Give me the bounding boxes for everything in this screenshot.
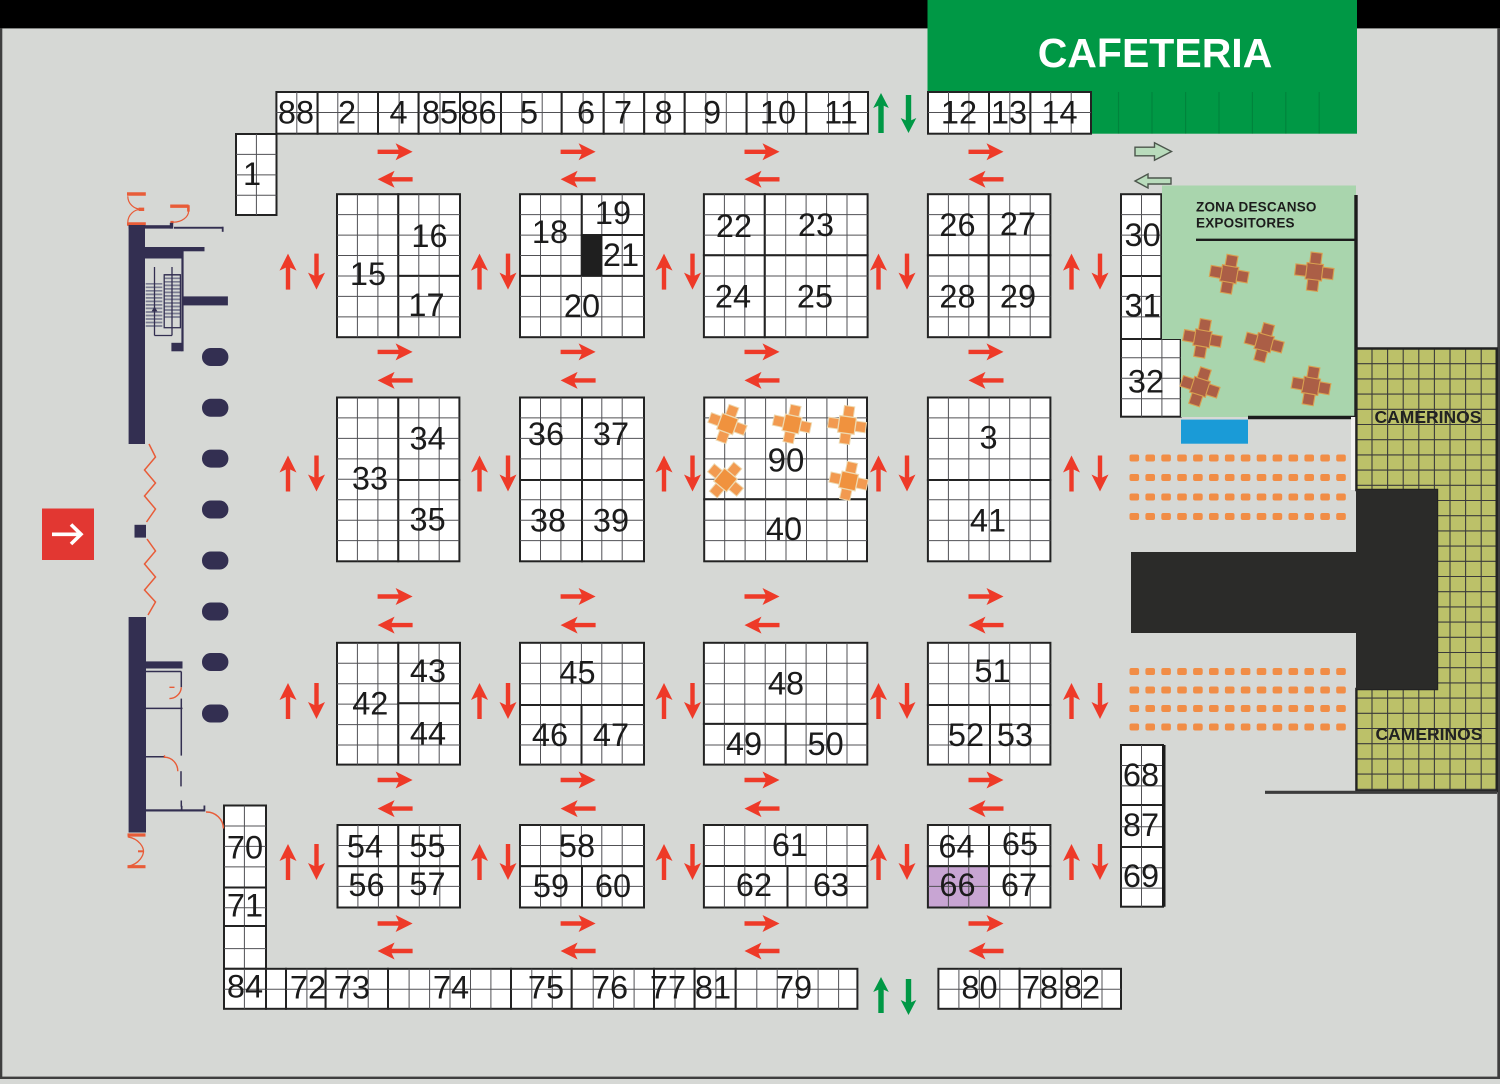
svg-text:ZONA DESCANSO: ZONA DESCANSO: [1196, 200, 1317, 215]
svg-text:47: 47: [593, 717, 629, 753]
svg-text:CAMERINOS: CAMERINOS: [1375, 407, 1482, 427]
svg-text:6: 6: [577, 94, 595, 130]
svg-text:CAFETERIA: CAFETERIA: [1038, 30, 1273, 76]
svg-text:71: 71: [227, 888, 263, 924]
svg-text:10: 10: [760, 94, 796, 130]
svg-text:79: 79: [776, 970, 812, 1006]
svg-text:20: 20: [564, 288, 600, 324]
svg-text:75: 75: [528, 970, 564, 1006]
svg-text:EXPOSITORES: EXPOSITORES: [1196, 216, 1295, 231]
svg-text:82: 82: [1064, 970, 1100, 1006]
svg-text:1: 1: [243, 156, 261, 192]
svg-text:26: 26: [939, 207, 975, 243]
svg-text:14: 14: [1041, 94, 1077, 130]
svg-text:66: 66: [939, 867, 975, 903]
svg-text:19: 19: [595, 195, 631, 231]
svg-text:54: 54: [347, 829, 383, 865]
svg-text:51: 51: [974, 653, 1010, 689]
svg-text:15: 15: [350, 256, 386, 292]
svg-text:21: 21: [603, 237, 639, 273]
svg-text:84: 84: [227, 969, 263, 1005]
svg-text:81: 81: [695, 970, 731, 1006]
svg-text:31: 31: [1125, 288, 1161, 324]
svg-text:53: 53: [997, 717, 1033, 753]
svg-text:48: 48: [768, 666, 804, 702]
svg-text:88: 88: [278, 94, 314, 130]
svg-text:35: 35: [410, 501, 446, 537]
svg-text:7: 7: [614, 94, 632, 130]
svg-text:52: 52: [948, 717, 984, 753]
svg-text:46: 46: [532, 717, 568, 753]
svg-text:87: 87: [1123, 807, 1159, 843]
svg-text:24: 24: [715, 279, 751, 315]
svg-text:68: 68: [1123, 757, 1159, 793]
svg-text:12: 12: [941, 94, 977, 130]
svg-text:CAMERINOS: CAMERINOS: [1376, 724, 1483, 744]
svg-text:41: 41: [970, 503, 1006, 539]
svg-text:23: 23: [798, 207, 834, 243]
svg-text:85: 85: [422, 94, 458, 130]
svg-text:86: 86: [460, 94, 496, 130]
svg-text:74: 74: [433, 970, 469, 1006]
svg-text:73: 73: [334, 970, 370, 1006]
svg-text:11: 11: [824, 94, 858, 130]
svg-text:43: 43: [410, 653, 446, 689]
svg-text:18: 18: [532, 214, 568, 250]
svg-text:90: 90: [768, 442, 805, 479]
svg-text:37: 37: [593, 416, 629, 452]
svg-text:36: 36: [528, 416, 564, 452]
svg-text:33: 33: [352, 461, 388, 497]
svg-text:28: 28: [939, 279, 975, 315]
svg-text:78: 78: [1022, 970, 1058, 1006]
svg-text:61: 61: [772, 827, 808, 863]
svg-text:25: 25: [797, 279, 833, 315]
svg-text:72: 72: [290, 970, 326, 1006]
svg-text:70: 70: [227, 830, 263, 866]
svg-text:63: 63: [813, 867, 849, 903]
svg-text:55: 55: [409, 828, 445, 864]
svg-text:29: 29: [1000, 279, 1036, 315]
svg-text:77: 77: [650, 970, 686, 1006]
svg-text:45: 45: [559, 655, 595, 691]
svg-text:65: 65: [1002, 826, 1038, 862]
svg-text:34: 34: [410, 420, 446, 456]
svg-text:4: 4: [389, 94, 407, 130]
svg-text:8: 8: [654, 94, 672, 130]
svg-text:58: 58: [559, 828, 595, 864]
svg-text:22: 22: [716, 208, 752, 244]
svg-text:44: 44: [410, 716, 446, 752]
svg-text:32: 32: [1128, 364, 1164, 400]
svg-text:76: 76: [592, 970, 628, 1006]
svg-text:57: 57: [409, 866, 445, 902]
svg-text:9: 9: [703, 94, 721, 130]
svg-text:27: 27: [1000, 206, 1036, 242]
svg-text:38: 38: [530, 503, 566, 539]
svg-text:16: 16: [411, 218, 447, 254]
svg-text:69: 69: [1123, 858, 1159, 894]
svg-text:42: 42: [352, 686, 388, 722]
svg-text:80: 80: [961, 970, 997, 1006]
svg-text:30: 30: [1125, 217, 1161, 253]
svg-text:40: 40: [766, 511, 802, 547]
svg-text:5: 5: [520, 94, 538, 130]
svg-text:2: 2: [338, 94, 356, 130]
svg-text:56: 56: [348, 867, 384, 903]
svg-text:60: 60: [595, 868, 631, 904]
svg-text:49: 49: [726, 726, 762, 762]
svg-text:39: 39: [593, 503, 629, 539]
svg-text:59: 59: [533, 868, 569, 904]
svg-text:13: 13: [991, 94, 1027, 130]
svg-text:64: 64: [938, 829, 974, 865]
svg-text:67: 67: [1001, 867, 1037, 903]
svg-text:62: 62: [736, 867, 772, 903]
svg-text:3: 3: [979, 420, 997, 456]
svg-text:17: 17: [408, 287, 444, 323]
svg-text:50: 50: [808, 726, 844, 762]
